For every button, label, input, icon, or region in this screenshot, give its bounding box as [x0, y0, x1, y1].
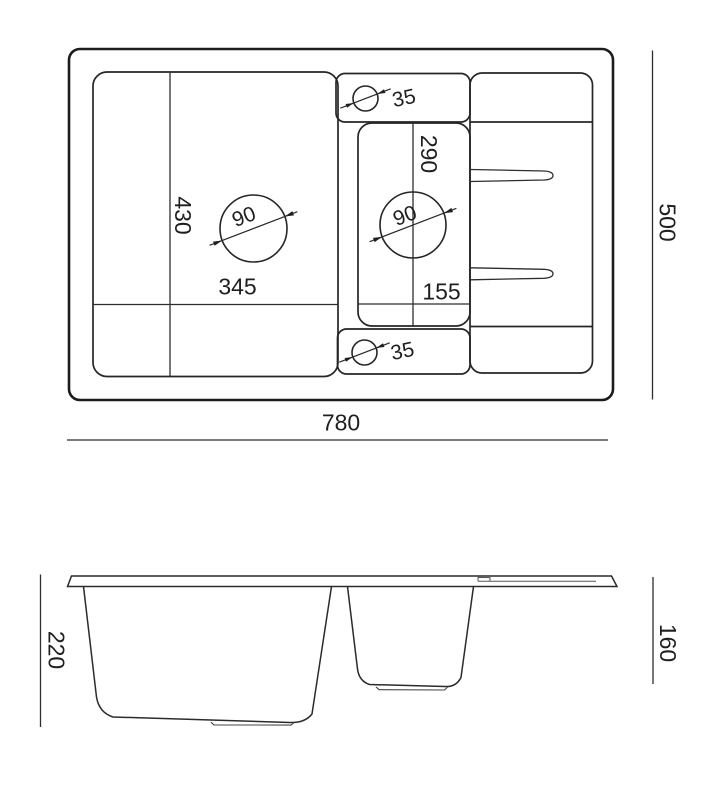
main-bowl-outline: [93, 72, 338, 377]
tap-hole-top-label: 35: [390, 85, 418, 112]
arrowhead: [376, 343, 384, 348]
overall-width-label: 780: [322, 410, 360, 436]
small-drain-label: 90: [390, 201, 420, 231]
main-bowl-width-label: 345: [218, 274, 256, 300]
drainer-outline: [470, 73, 593, 373]
arrowhead: [377, 89, 385, 94]
drainer-groove-bottom: [471, 268, 554, 280]
arrowhead: [373, 237, 382, 242]
sink-outline: [69, 49, 613, 400]
drainer-groove-top: [471, 170, 554, 182]
arrowhead: [285, 211, 294, 216]
arrowhead: [213, 241, 222, 246]
arrowhead: [444, 208, 453, 213]
arrowhead: [345, 357, 353, 362]
arrowhead: [346, 103, 354, 108]
sink-technical-drawing: 90 90 35 35 430 345 290 155 500 780: [0, 0, 721, 800]
tap-hole-bottom-label: 35: [389, 338, 417, 365]
main-bowl-profile: [84, 587, 332, 723]
small-bowl-drain-lip: [376, 687, 448, 690]
small-bowl-width-label: 155: [422, 279, 460, 305]
small-bowl-height-label: 290: [416, 135, 442, 173]
main-bowl-depth-label: 220: [44, 631, 70, 669]
top-view: 90 90 35 35 430 345 290 155 500 780: [67, 49, 681, 440]
main-bowl-height-label: 430: [170, 196, 196, 234]
sink-technical-drawing-page: 90 90 35 35 430 345 290 155 500 780: [0, 0, 721, 800]
side-view: 220 160: [41, 575, 682, 728]
small-bowl-profile: [348, 587, 474, 687]
overall-height-label: 500: [655, 203, 681, 241]
small-bowl-depth-label: 160: [655, 624, 681, 662]
